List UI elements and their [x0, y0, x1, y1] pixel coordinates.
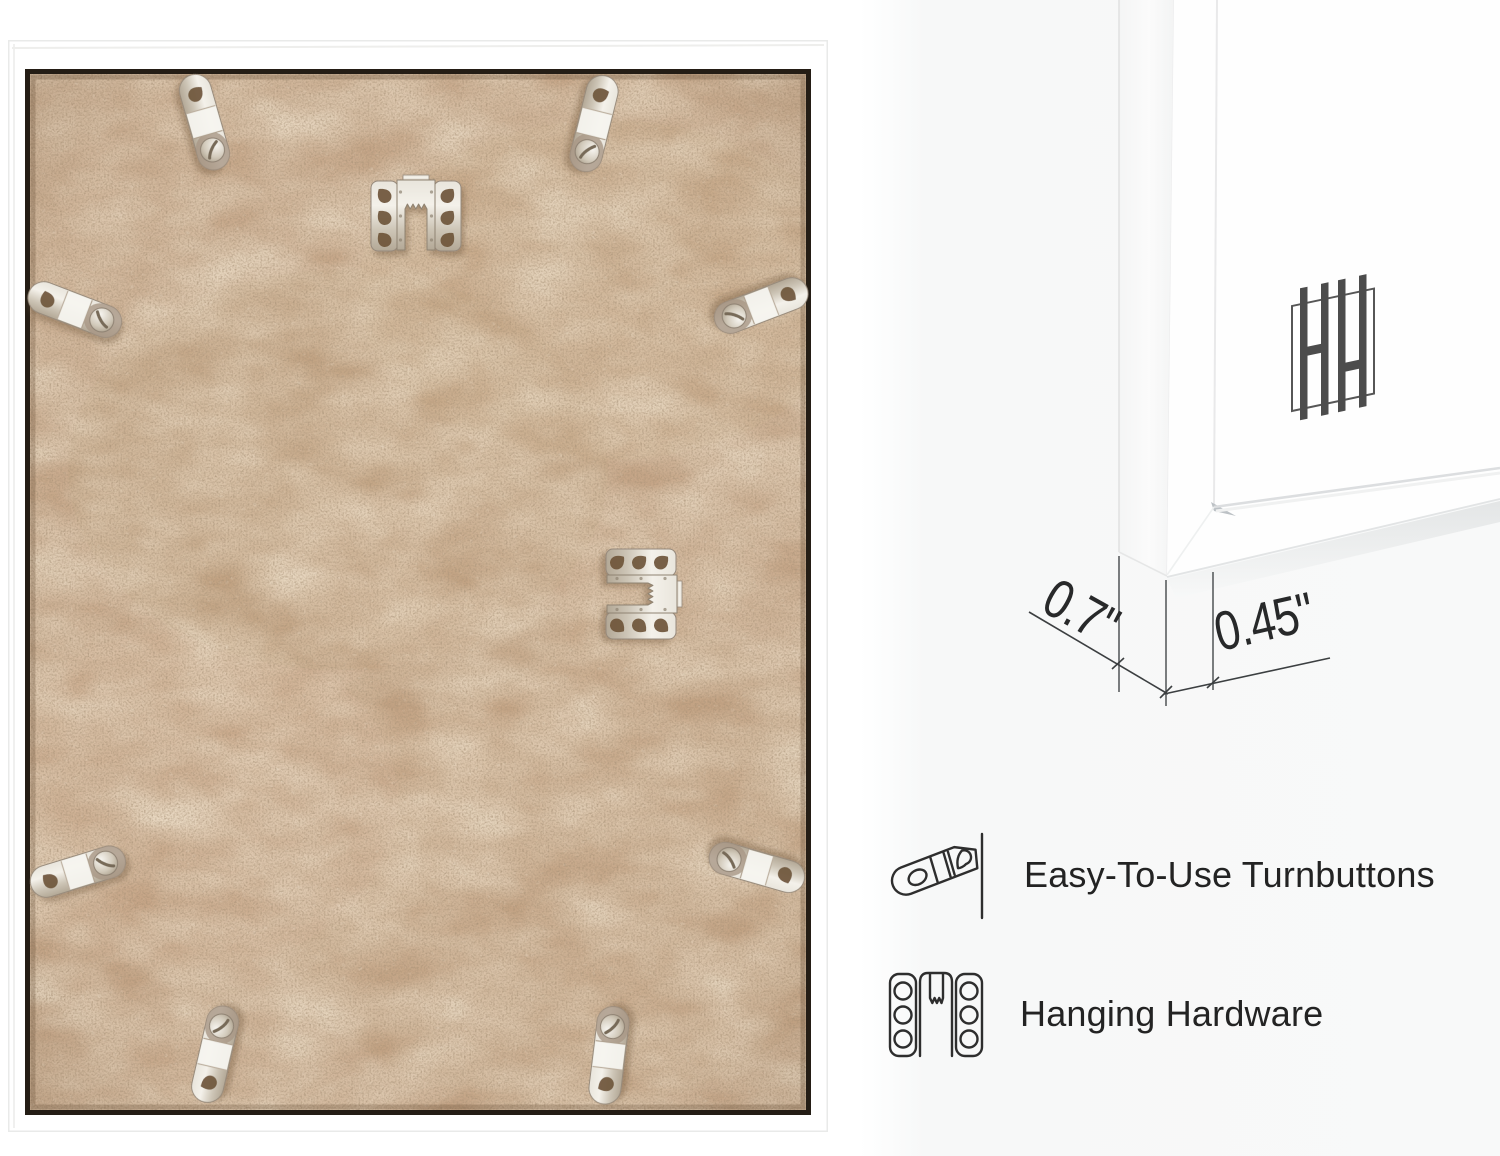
frame-corner-photo: 0.7" 0.45": [1000, 0, 1500, 780]
feature-label-hanging: Hanging Hardware: [1020, 993, 1323, 1035]
mdf-backing-board: [8, 74, 828, 1110]
dimension-label-width: 0.45": [1208, 580, 1319, 663]
dimension-line-width: [1164, 658, 1330, 694]
frame-corner-svg: 0.7" 0.45": [1000, 0, 1500, 780]
feature-turnbuttons: Easy-To-Use Turnbuttons: [886, 828, 1435, 922]
feature-hanging-hardware: Hanging Hardware: [886, 966, 1323, 1062]
frame-side-face: [1119, 0, 1174, 576]
feature-label-turnbuttons: Easy-To-Use Turnbuttons: [1024, 854, 1435, 896]
dimension-label-depth: 0.7": [1033, 566, 1129, 657]
hanging-hardware-icon: [886, 966, 986, 1062]
frame-back-illustration: [8, 40, 828, 1132]
frame-back-photo: [8, 40, 828, 1132]
turnbutton-icon: [886, 828, 990, 922]
